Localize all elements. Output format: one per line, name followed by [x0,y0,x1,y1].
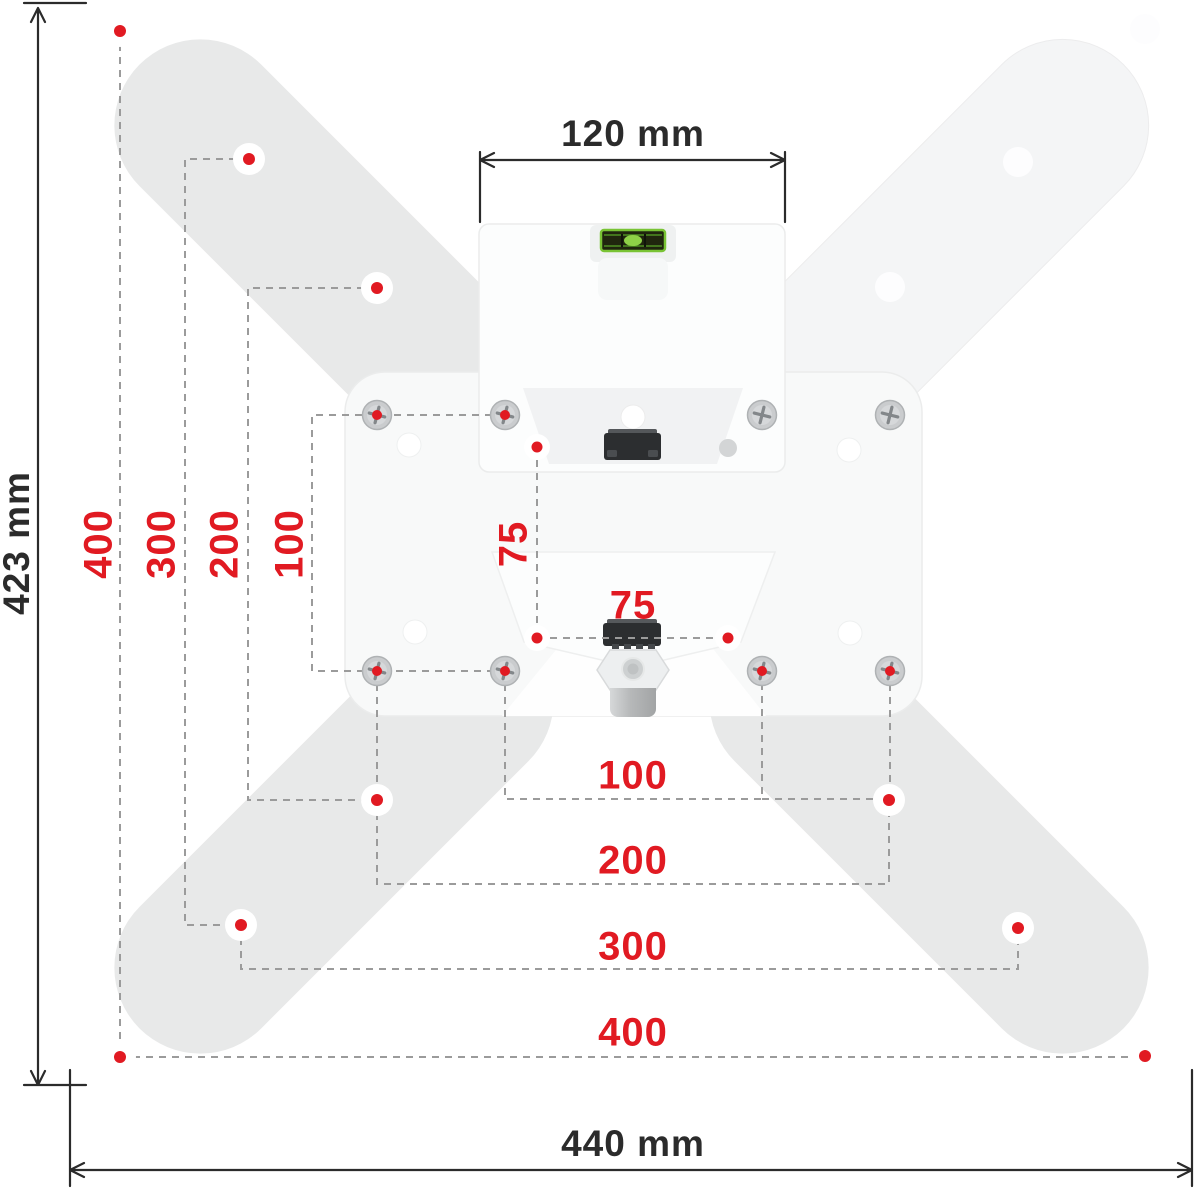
vesa-hole-marker [524,434,550,460]
bracket-hole [621,405,645,429]
vesa-hole-marker [361,272,393,304]
dimension-label-top: 120 mm [561,113,705,155]
vesa-label-vertical-400: 400 [77,509,122,579]
vesa-label-vertical-100: 100 [268,509,313,579]
level-tab [598,258,668,300]
vesa-label-horizontal-300: 300 [598,925,668,970]
dimension-label-bottom: 440 mm [561,1123,705,1165]
vesa-dimension-diagram: 120 mm 423 mm 440 mm 400 300 200 100 75 … [0,0,1200,1188]
dimension-top-120 [480,152,785,222]
vesa-hole-marker [1002,912,1034,944]
vesa-hole-marker [104,1041,136,1073]
vesa-hole-marker [233,143,265,175]
vesa-label-horizontal-100: 100 [598,754,668,799]
bracket-pin [719,439,737,457]
screw-marked [363,657,392,686]
vesa-label-vertical-75: 75 [492,521,537,568]
vesa-label-horizontal-200: 200 [598,839,668,884]
pivot-post [610,688,656,717]
plate-hole [838,621,862,645]
screw [876,401,905,430]
cable-clamp-top [604,429,661,460]
vesa-hole-marker [361,784,393,816]
screw-marked [748,657,777,686]
plate-hole [837,438,861,462]
vesa-label-horizontal-75: 75 [610,584,657,629]
bubble-level-icon [601,230,665,251]
vesa-hole-marker [715,625,741,651]
screw-marked [363,401,392,430]
arm-hole [1003,147,1033,177]
arm-hole [875,272,905,302]
arm-hole [1130,14,1160,44]
screw [748,401,777,430]
screw-marked [491,401,520,430]
vesa-hole-marker [104,15,136,47]
vesa-hole-marker [873,784,905,816]
plate-hole [403,620,427,644]
wall-bracket [479,224,785,472]
vesa-label-horizontal-400: 400 [598,1011,668,1056]
screw-marked [491,657,520,686]
dimension-label-left: 423 mm [0,471,38,615]
vesa-label-vertical-200: 200 [203,509,248,579]
vesa-label-vertical-300: 300 [140,509,185,579]
screw-marked [876,657,905,686]
vesa-hole-marker [524,625,550,651]
plate-hole [397,433,421,457]
pivot-nut [597,650,669,690]
vesa-hole-marker [225,909,257,941]
vesa-hole-marker [1129,1040,1161,1072]
